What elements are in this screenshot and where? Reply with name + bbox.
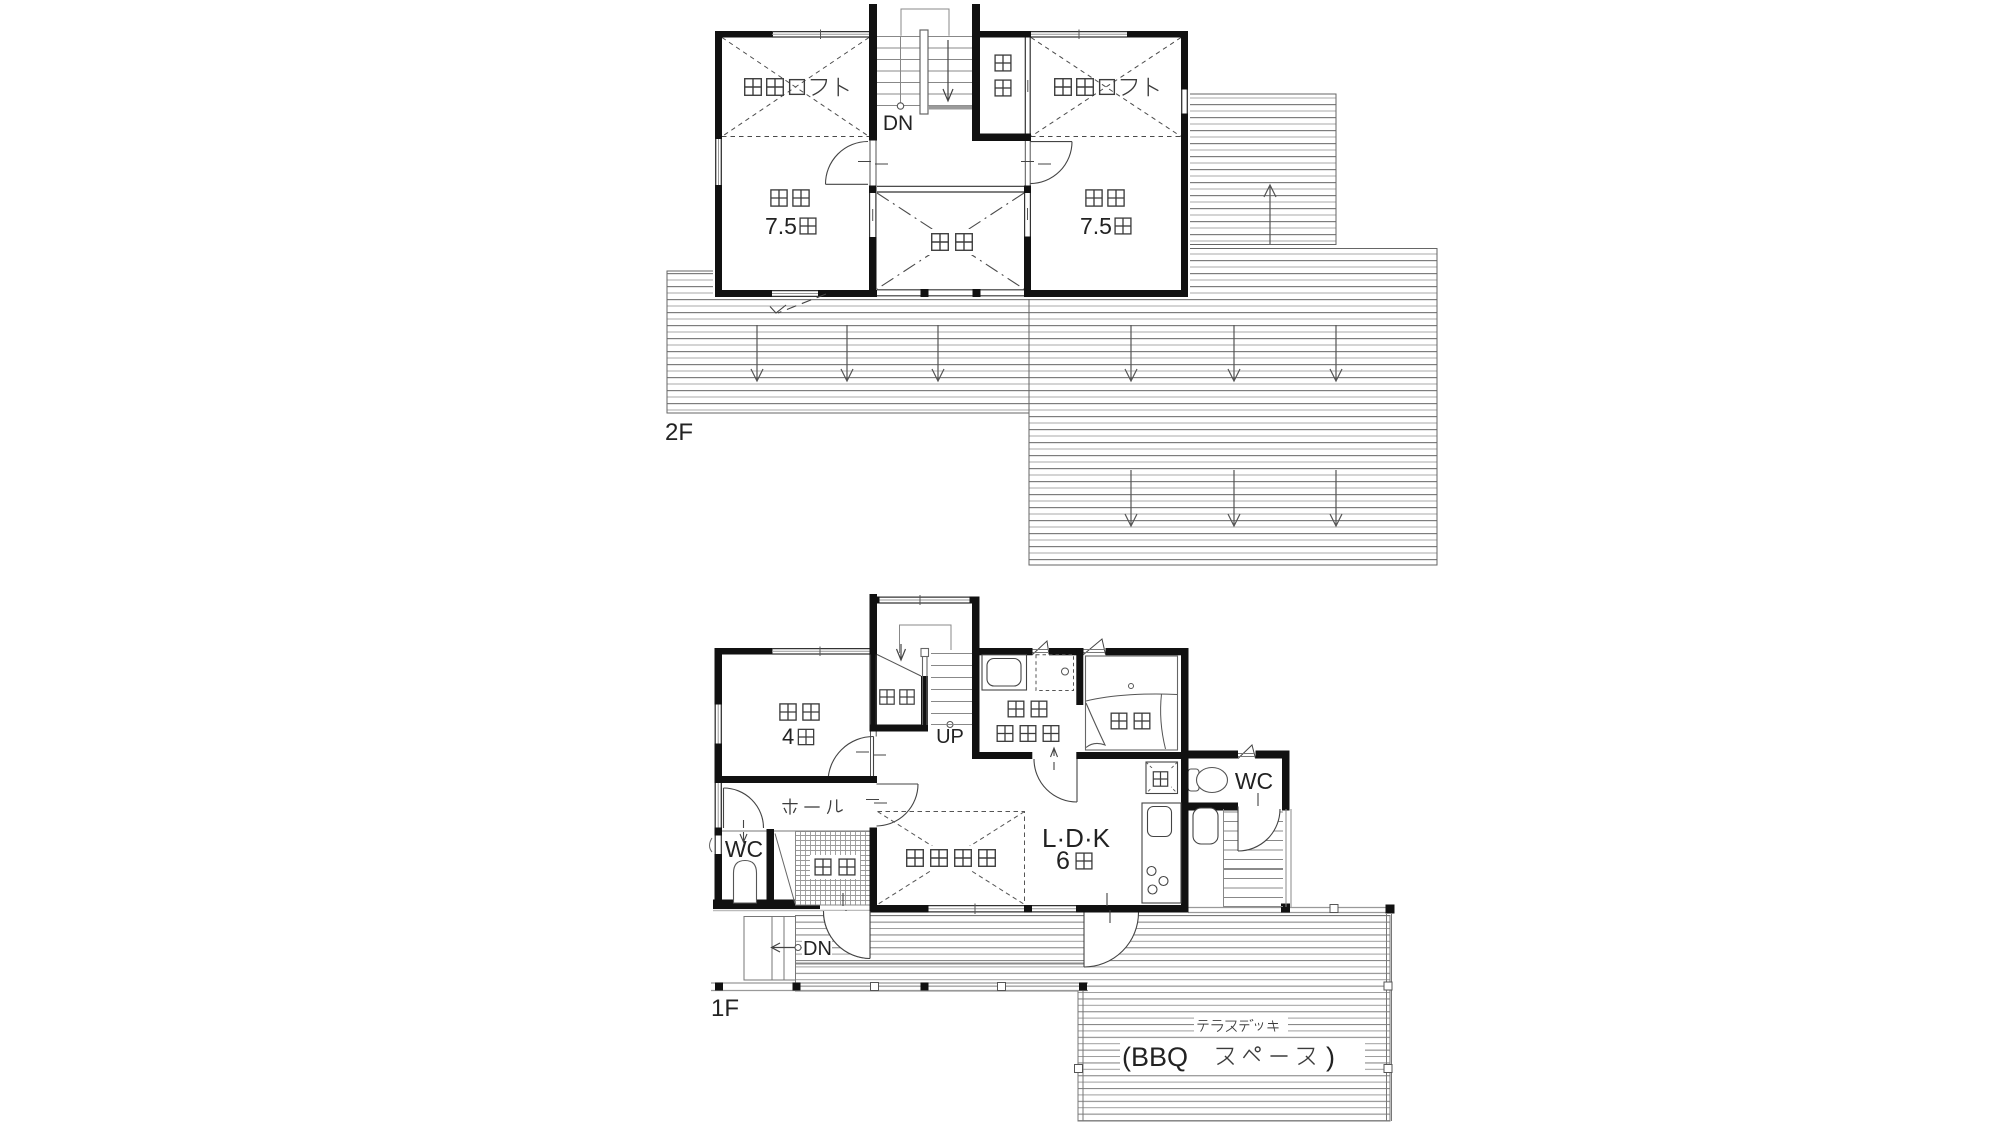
svg-text:UP: UP (936, 726, 964, 748)
svg-text:WC: WC (1235, 768, 1273, 794)
svg-text:7.5: 7.5 (765, 213, 797, 239)
svg-text:2F: 2F (665, 419, 693, 446)
svg-text:DN: DN (803, 938, 832, 960)
svg-text:7.5: 7.5 (1080, 213, 1112, 239)
svg-text:WC: WC (725, 836, 763, 862)
svg-text:1F: 1F (711, 995, 739, 1022)
svg-text:DN: DN (883, 112, 913, 135)
svg-text:): ) (1326, 1042, 1335, 1072)
svg-text:(BBQ: (BBQ (1122, 1042, 1188, 1072)
svg-text:L·D·K: L·D·K (1042, 823, 1111, 853)
svg-text:4: 4 (782, 724, 794, 749)
svg-text:6: 6 (1056, 847, 1070, 875)
